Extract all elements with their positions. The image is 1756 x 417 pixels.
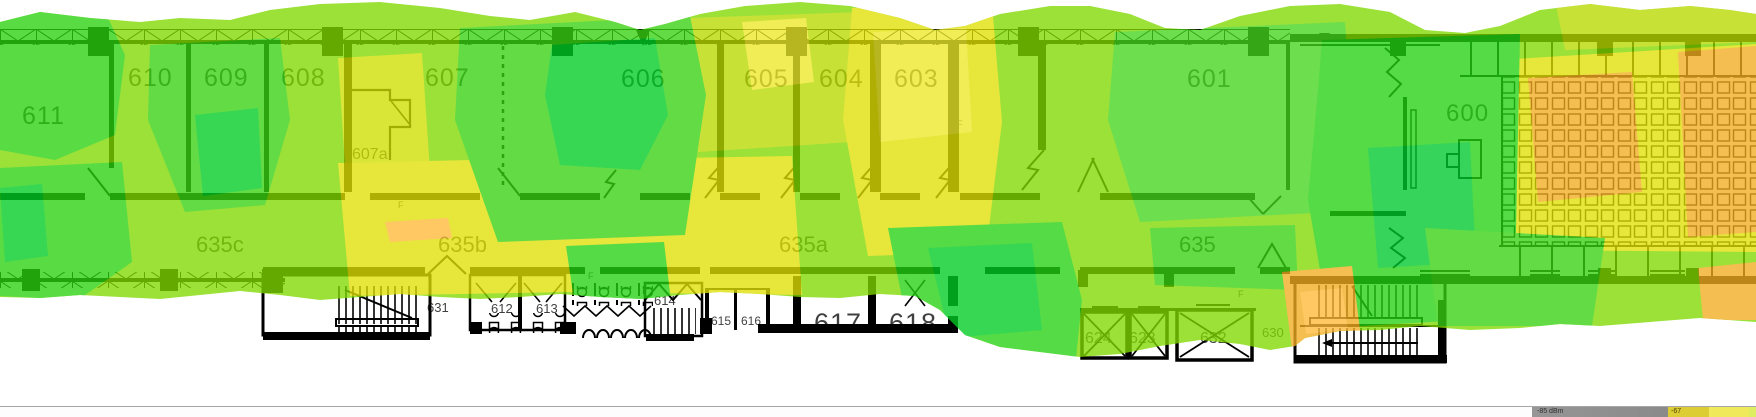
legend-yellowgreen-segment (1749, 407, 1756, 417)
wifi-heatmap-canvas[interactable]: 611 610 609 608 607 607a 606 605 604 603… (0, 0, 1756, 417)
legend-yellow-segment-2 (1709, 407, 1749, 417)
room-label-613: 613 (536, 301, 558, 316)
room-label-631: 631 (427, 300, 449, 315)
room-label-615: 615 (711, 314, 731, 328)
room-label-617: 617 (814, 308, 862, 338)
legend-gray-segment: -85 dBm (1532, 407, 1668, 417)
legend-yellow-segment: -67 (1668, 407, 1709, 417)
legend-low-label: -85 dBm (1537, 408, 1563, 415)
room-label-616: 616 (741, 314, 761, 328)
legend-threshold-label: -67 (1671, 408, 1681, 415)
status-bar: -85 dBm -67 (0, 406, 1756, 417)
signal-legend: -85 dBm -67 (1532, 407, 1756, 417)
floorplan-canvas[interactable]: 611 610 609 608 607 607a 606 605 604 603… (0, 0, 1756, 417)
room-label-612: 612 (491, 301, 513, 316)
room-label-618: 618 (889, 308, 937, 338)
